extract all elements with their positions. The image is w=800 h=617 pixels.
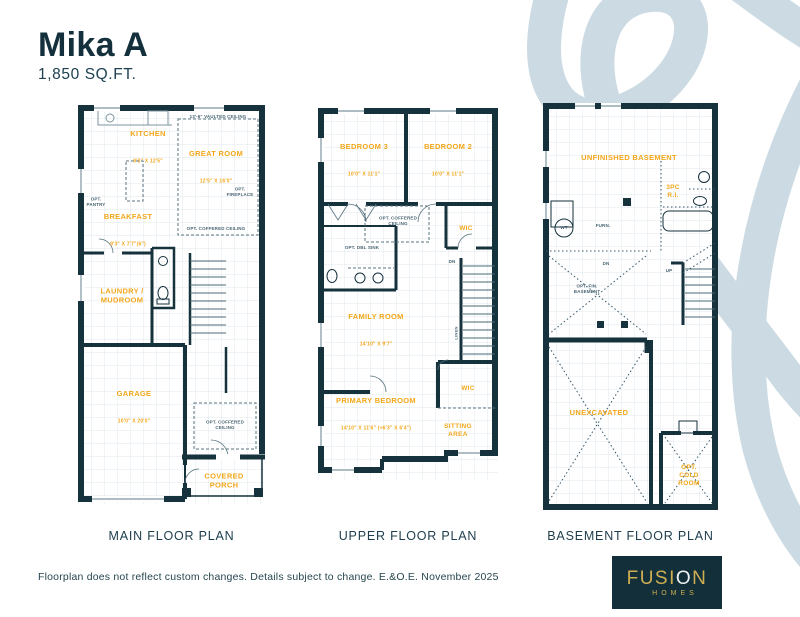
room-name: UNFINISHED BASEMENT bbox=[581, 154, 677, 163]
room-name: LAUNDRY / MUDROOM bbox=[100, 287, 143, 305]
main-floor-plan: KITCHEN 9'3" X 12'5" GREAT ROOM 12'5" X … bbox=[78, 105, 265, 505]
logo-part1: FUSI bbox=[627, 568, 676, 589]
logo-accent-o: O bbox=[676, 568, 692, 589]
room-label-kitchen: KITCHEN 9'3" X 12'5" bbox=[130, 110, 165, 183]
note-opt-coffered-upper: OPT. COFFERED CEILING bbox=[379, 215, 417, 226]
note-stairs-up: UP bbox=[666, 268, 673, 274]
room-name: BREAKFAST bbox=[104, 213, 153, 222]
floorplan-sheet: Mika A 1,850 SQ.FT. bbox=[0, 0, 800, 617]
disclaimer-text: Floorplan does not reflect custom change… bbox=[38, 571, 499, 583]
caption-main-floor: MAIN FLOOR PLAN bbox=[78, 529, 265, 543]
room-dims: 10'0" X 11'1" bbox=[340, 171, 388, 177]
room-name: WIC bbox=[459, 224, 473, 232]
room-label-breakfast: BREAKFAST 9'3" X 7'7"(6") bbox=[104, 193, 153, 266]
upper-floor-plan: BEDROOM 3 10'0" X 11'1" BEDROOM 2 10'0" … bbox=[318, 108, 498, 480]
room-label-laundry-mudroom: LAUNDRY / MUDROOM bbox=[100, 268, 143, 324]
note-linen: LINEN bbox=[454, 326, 459, 339]
room-name: 3PC R.I. bbox=[666, 183, 680, 199]
basement-floor-plan: UNFINISHED BASEMENT 3PC R.I. UNEXCAVATED… bbox=[543, 103, 718, 510]
room-dims: 9'3" X 7'7"(6") bbox=[104, 241, 153, 247]
room-dims: 10'0" X 20'0" bbox=[117, 418, 152, 424]
room-label-sitting-area: SITTING AREA bbox=[444, 403, 472, 457]
room-name: UNEXCAVATED bbox=[570, 409, 629, 418]
header: Mika A 1,850 SQ.FT. bbox=[38, 28, 148, 84]
room-label-garage: GARAGE 10'0" X 20'0" bbox=[117, 370, 152, 443]
room-name: KITCHEN bbox=[130, 130, 165, 139]
room-dims: 9'3" X 12'5" bbox=[130, 158, 165, 164]
note-furnace: FURN. bbox=[596, 223, 611, 229]
room-label-family-room: FAMILY ROOM 14'10" X 9'7" bbox=[348, 293, 403, 366]
note-stairs-dn: DN bbox=[603, 261, 610, 267]
note-opt-pantry: OPT. PANTRY bbox=[87, 196, 106, 207]
room-label-unexcavated: UNEXCAVATED bbox=[570, 389, 629, 436]
note-opt-finished-basement: OPT. FIN. BASEMENT bbox=[574, 283, 600, 294]
fusion-homes-logo: FUSION HOMES bbox=[612, 556, 722, 609]
room-dims: 10'0" X 11'1" bbox=[424, 171, 472, 177]
room-label-unfinished-basement: UNFINISHED BASEMENT bbox=[581, 134, 677, 181]
note-stairs-dn: DN bbox=[449, 259, 456, 265]
note-opt-coffered-great: OPT. COFFERED CEILING bbox=[187, 226, 246, 232]
model-title: Mika A bbox=[38, 28, 148, 62]
room-name: BEDROOM 3 bbox=[340, 143, 388, 152]
room-label-primary-bedroom: PRIMARY BEDROOM 14'10" X 11'6" (+6'3" X … bbox=[336, 377, 416, 450]
room-label-covered-porch: COVERED PORCH bbox=[204, 453, 243, 509]
room-name: BEDROOM 2 bbox=[424, 143, 472, 152]
room-dims: 14'10" X 11'6" (+6'3" X 6'4") bbox=[336, 425, 416, 431]
room-name: PRIMARY BEDROOM bbox=[336, 397, 416, 406]
room-label-wic-upper: WIC bbox=[459, 205, 473, 251]
room-name: OPT. COLD ROOM bbox=[678, 463, 699, 486]
room-name: WIC bbox=[461, 384, 475, 392]
room-name: SITTING AREA bbox=[444, 422, 472, 438]
note-water-tank: WT bbox=[560, 225, 567, 231]
note-opt-dbl-sink: OPT. DBL SINK bbox=[345, 245, 379, 251]
model-sqft: 1,850 SQ.FT. bbox=[38, 66, 148, 84]
room-label-bedroom3: BEDROOM 3 10'0" X 11'1" bbox=[340, 123, 388, 196]
caption-basement-floor: BASEMENT FLOOR PLAN bbox=[543, 529, 718, 543]
note-opt-fireplace: OPT. FIREPLACE bbox=[227, 186, 254, 197]
room-name: GREAT ROOM bbox=[189, 150, 243, 159]
room-dims: 12'5" X 16'0" bbox=[189, 178, 243, 184]
logo-wordmark: FUSION bbox=[627, 569, 708, 588]
room-label-bedroom2: BEDROOM 2 10'0" X 11'1" bbox=[424, 123, 472, 196]
note-vaulted-ceiling: 13'-6" VAULTED CEILING bbox=[190, 114, 247, 120]
logo-part2: N bbox=[692, 568, 707, 589]
room-name: FAMILY ROOM bbox=[348, 313, 403, 322]
room-dims: 14'10" X 9'7" bbox=[348, 341, 403, 347]
room-name: COVERED PORCH bbox=[204, 472, 243, 490]
room-name: GARAGE bbox=[117, 390, 152, 399]
caption-upper-floor: UPPER FLOOR PLAN bbox=[318, 529, 498, 543]
room-label-opt-cold-room: OPT. COLD ROOM bbox=[678, 444, 699, 506]
logo-subtitle: HOMES bbox=[652, 590, 698, 597]
room-label-3pc-ri: 3PC R.I. bbox=[666, 164, 680, 218]
note-opt-coffered-foyer: OPT. COFFERED CEILING bbox=[206, 419, 244, 430]
